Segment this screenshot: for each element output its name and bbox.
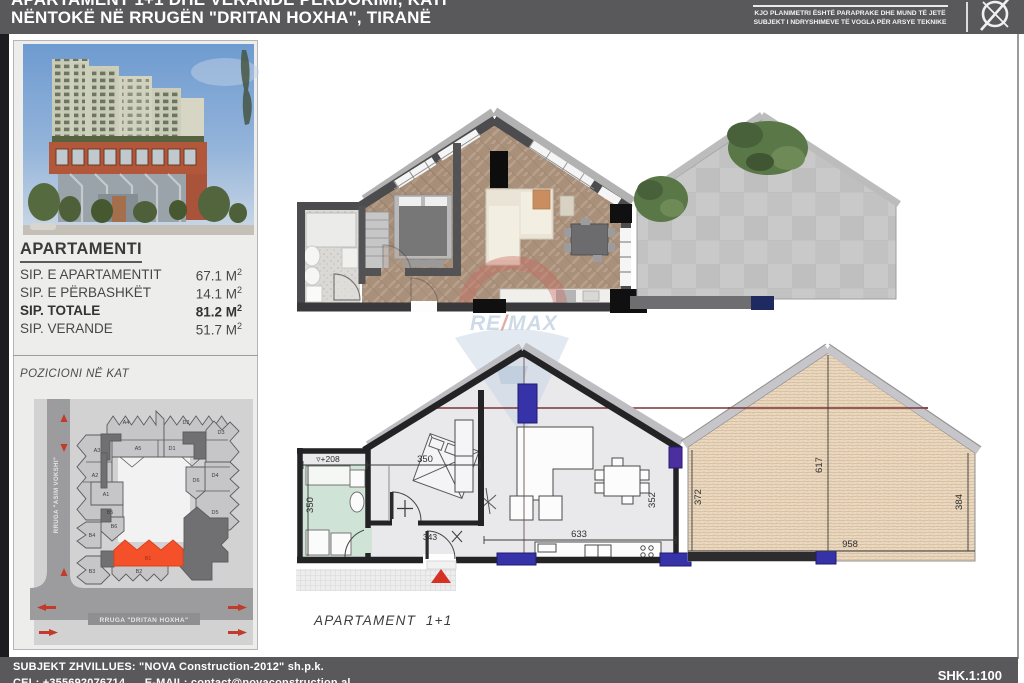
svg-text:A5: A5 xyxy=(135,446,142,452)
svg-text:B5: B5 xyxy=(107,510,114,516)
svg-text:D1: D1 xyxy=(168,446,175,452)
svg-text:RRUGA "DRITAN HOXHA": RRUGA "DRITAN HOXHA" xyxy=(100,617,189,624)
svg-text:D2: D2 xyxy=(182,420,189,426)
svg-text:B1: B1 xyxy=(145,556,152,562)
svg-text:A3: A3 xyxy=(94,448,101,454)
svg-text:350: 350 xyxy=(417,454,433,465)
svg-text:RRUGA "ASIM VOKSHI": RRUGA "ASIM VOKSHI" xyxy=(54,457,60,533)
svg-text:B4: B4 xyxy=(89,533,96,539)
svg-text:350: 350 xyxy=(305,497,316,513)
svg-text:617: 617 xyxy=(814,457,825,473)
svg-text:A2: A2 xyxy=(92,473,99,479)
svg-text:▿+208: ▿+208 xyxy=(316,454,340,464)
svg-text:A1: A1 xyxy=(103,492,110,498)
svg-text:B6: B6 xyxy=(111,524,118,530)
svg-text:633: 633 xyxy=(571,529,587,540)
svg-text:RE/MAX: RE/MAX xyxy=(470,312,559,335)
svg-text:D3: D3 xyxy=(217,430,224,436)
svg-text:B3: B3 xyxy=(89,569,96,575)
svg-text:372: 372 xyxy=(693,489,704,505)
svg-text:352: 352 xyxy=(647,492,658,508)
svg-text:B2: B2 xyxy=(136,569,143,575)
svg-text:D4: D4 xyxy=(211,473,218,479)
svg-text:384: 384 xyxy=(954,494,965,510)
svg-text:958: 958 xyxy=(842,539,858,550)
svg-text:A4: A4 xyxy=(123,420,130,426)
svg-text:D6: D6 xyxy=(192,478,199,484)
svg-text:343: 343 xyxy=(423,532,437,542)
svg-text:D5: D5 xyxy=(211,510,218,516)
